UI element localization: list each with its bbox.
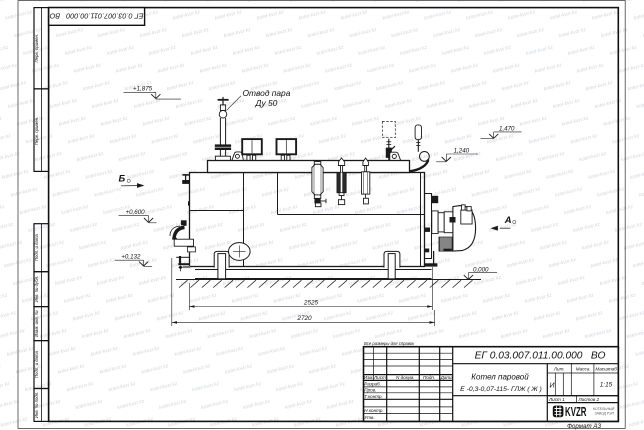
svg-text:Б: Б — [119, 173, 126, 184]
svg-text:kotel-kvzr.kz: kotel-kvzr.kz — [76, 151, 105, 164]
svg-text:kotel-kvzr.kz: kotel-kvzr.kz — [15, 363, 44, 376]
svg-text:kotel-kvzr.kz: kotel-kvzr.kz — [0, 44, 9, 57]
svg-text:kotel-kvzr.kz: kotel-kvzr.kz — [99, 363, 128, 376]
svg-text:kotel-kvzr.kz: kotel-kvzr.kz — [546, 168, 575, 181]
svg-text:kotel-kvzr.kz: kotel-kvzr.kz — [492, 62, 521, 75]
svg-text:kotel-kvzr.kz: kotel-kvzr.kz — [531, 221, 560, 234]
svg-text:1:15: 1:15 — [600, 382, 613, 389]
svg-text:kotel-kvzr.kz: kotel-kvzr.kz — [150, 381, 179, 394]
svg-text:kotel-kvzr.kz: kotel-kvzr.kz — [543, 80, 572, 93]
svg-text:kotel-kvzr.kz: kotel-kvzr.kz — [316, 44, 345, 57]
svg-text:kotel-kvzr.kz: kotel-kvzr.kz — [5, 9, 34, 22]
svg-text:kotel-kvzr.kz: kotel-kvzr.kz — [542, 328, 571, 341]
svg-text:kotel-kvzr.kz: kotel-kvzr.kz — [0, 363, 2, 376]
svg-text:kotel-kvzr.kz: kotel-kvzr.kz — [0, 204, 6, 217]
svg-text:kotel-kvzr.kz: kotel-kvzr.kz — [435, 115, 464, 128]
svg-text:kotel-kvzr.kz: kotel-kvzr.kz — [462, 168, 491, 181]
svg-text:kotel-kvzr.kz: kotel-kvzr.kz — [533, 310, 562, 323]
svg-text:Подп.: Подп. — [423, 375, 435, 380]
svg-text:А: А — [504, 214, 512, 225]
svg-text:kotel-kvzr.kz: kotel-kvzr.kz — [552, 98, 581, 111]
svg-text:kotel-kvzr.kz: kotel-kvzr.kz — [444, 133, 473, 146]
svg-text:kotel-kvzr.kz: kotel-kvzr.kz — [166, 80, 195, 93]
svg-text:kotel-kvzr.kz: kotel-kvzr.kz — [309, 363, 338, 376]
svg-text:kotel-kvzr.kz: kotel-kvzr.kz — [100, 115, 129, 128]
svg-text:kotel-kvzr.kz: kotel-kvzr.kz — [141, 363, 170, 376]
svg-text:kotel-kvzr.kz: kotel-kvzr.kz — [550, 9, 579, 22]
svg-text:kotel-kvzr.kz: kotel-kvzr.kz — [416, 328, 445, 341]
svg-text:kotel-kvzr.kz: kotel-kvzr.kz — [581, 239, 610, 252]
svg-text:kotel-kvzr.kz: kotel-kvzr.kz — [208, 80, 237, 93]
svg-text:kotel-kvzr.kz: kotel-kvzr.kz — [358, 44, 387, 57]
svg-text:kotel-kvzr.kz: kotel-kvzr.kz — [588, 168, 617, 181]
svg-text:kotel-kvzr.kz: kotel-kvzr.kz — [579, 151, 608, 164]
svg-text:kotel-kvzr.kz: kotel-kvzr.kz — [510, 98, 539, 111]
svg-text:kotel-kvzr.kz: kotel-kvzr.kz — [375, 328, 404, 341]
svg-text:kotel-kvzr.kz: kotel-kvzr.kz — [10, 186, 39, 199]
svg-text:kotel-kvzr.kz: kotel-kvzr.kz — [192, 381, 221, 394]
svg-text:kotel-kvzr.kz: kotel-kvzr.kz — [633, 9, 644, 22]
svg-text:Перв. примен.: Перв. примен. — [34, 34, 39, 63]
svg-text:kotel-kvzr.kz: kotel-kvzr.kz — [600, 27, 629, 40]
svg-text:kotel-kvzr.kz: kotel-kvzr.kz — [274, 44, 303, 57]
svg-text:kotel-kvzr.kz: kotel-kvzr.kz — [525, 44, 554, 57]
svg-text:kotel-kvzr.kz: kotel-kvzr.kz — [618, 62, 644, 75]
svg-text:kotel-kvzr.kz: kotel-kvzr.kz — [136, 186, 165, 199]
svg-text:kotel-kvzr.kz: kotel-kvzr.kz — [343, 98, 372, 111]
svg-text:kotel-kvzr.kz: kotel-kvzr.kz — [513, 186, 542, 199]
svg-text:+0,132: +0,132 — [121, 254, 141, 261]
svg-text:kotel-kvzr.kz: kotel-kvzr.kz — [540, 239, 569, 252]
svg-text:Лист 1: Лист 1 — [548, 397, 565, 402]
svg-text:kotel-kvzr.kz: kotel-kvzr.kz — [603, 115, 632, 128]
svg-text:kotel-kvzr.kz: kotel-kvzr.kz — [498, 239, 527, 252]
svg-text:kotel-kvzr.kz: kotel-kvzr.kz — [484, 44, 513, 57]
svg-text:kotel-kvzr.kz: kotel-kvzr.kz — [108, 381, 137, 394]
svg-text:kotel-kvzr.kz: kotel-kvzr.kz — [178, 186, 207, 199]
svg-text:Разраб.: Разраб. — [364, 381, 381, 386]
svg-text:kotel-kvzr.kz: kotel-kvzr.kz — [49, 98, 78, 111]
svg-text:kotel-kvzr.kz: kotel-kvzr.kz — [528, 133, 557, 146]
svg-text:kotel-kvzr.kz: kotel-kvzr.kz — [72, 310, 101, 323]
svg-text:kotel-kvzr.kz: kotel-kvzr.kz — [357, 292, 386, 305]
svg-text:kotel-kvzr.kz: kotel-kvzr.kz — [207, 328, 236, 341]
svg-text:1,240: 1,240 — [454, 147, 470, 154]
svg-text:kotel-kvzr.kz: kotel-kvzr.kz — [183, 363, 212, 376]
svg-text:kotel-kvzr.kz: kotel-kvzr.kz — [223, 27, 252, 40]
svg-text:kotel-kvzr.kz: kotel-kvzr.kz — [325, 62, 354, 75]
svg-text:kotel-kvzr.kz: kotel-kvzr.kz — [627, 80, 644, 93]
svg-text:kotel-kvzr.kz: kotel-kvzr.kz — [105, 292, 134, 305]
svg-text:kotel-kvzr.kz: kotel-kvzr.kz — [139, 27, 168, 40]
svg-text:kotel-kvzr.kz: kotel-kvzr.kz — [265, 27, 294, 40]
svg-text:kotel-kvzr.kz: kotel-kvzr.kz — [276, 381, 305, 394]
svg-text:kotel-kvzr.kz: kotel-kvzr.kz — [524, 292, 553, 305]
svg-text:kotel-kvzr.kz: kotel-kvzr.kz — [317, 381, 346, 394]
svg-text:kotel-kvzr.kz: kotel-kvzr.kz — [639, 186, 644, 199]
svg-text:kotel-kvzr.kz: kotel-kvzr.kz — [39, 328, 68, 341]
svg-text:kotel-kvzr.kz: kotel-kvzr.kz — [55, 275, 84, 288]
svg-text:kotel-kvzr.kz: kotel-kvzr.kz — [222, 275, 251, 288]
svg-text:Перв. примен.: Перв. примен. — [34, 117, 39, 146]
svg-text:Н.контр.: Н.контр. — [364, 408, 383, 413]
svg-text:kotel-kvzr.kz: kotel-kvzr.kz — [620, 398, 644, 411]
svg-text:Котел паровой: Котел паровой — [471, 373, 529, 382]
svg-text:kotel-kvzr.kz: kotel-kvzr.kz — [133, 98, 162, 111]
svg-text:kotel-kvzr.kz: kotel-kvzr.kz — [360, 133, 389, 146]
svg-text:kotel-kvzr.kz: kotel-kvzr.kz — [214, 9, 243, 22]
svg-text:kotel-kvzr.kz: kotel-kvzr.kz — [339, 257, 368, 270]
svg-text:kotel-kvzr.kz: kotel-kvzr.kz — [88, 257, 117, 270]
svg-text:+0,600: +0,600 — [126, 209, 146, 216]
svg-text:kotel-kvzr.kz: kotel-kvzr.kz — [65, 44, 94, 57]
svg-text:kotel-kvzr.kz: kotel-kvzr.kz — [326, 398, 355, 411]
svg-text:Формат А3: Формат А3 — [567, 423, 601, 430]
svg-text:kotel-kvzr.kz: kotel-kvzr.kz — [210, 416, 239, 429]
svg-text:kotel-kvzr.kz: kotel-kvzr.kz — [216, 345, 245, 358]
svg-text:kotel-kvzr.kz: kotel-kvzr.kz — [46, 257, 75, 270]
svg-text:kotel-kvzr.kz: kotel-kvzr.kz — [117, 398, 146, 411]
svg-text:kotel-kvzr.kz: kotel-kvzr.kz — [291, 328, 320, 341]
svg-text:kotel-kvzr.kz: kotel-kvzr.kz — [606, 204, 635, 217]
svg-text:kotel-kvzr.kz: kotel-kvzr.kz — [629, 416, 644, 429]
svg-text:kotel-kvzr.kz: kotel-kvzr.kz — [261, 186, 290, 199]
svg-text:kotel-kvzr.kz: kotel-kvzr.kz — [393, 115, 422, 128]
svg-text:kotel-kvzr.kz: kotel-kvzr.kz — [0, 221, 15, 234]
svg-text:kotel-kvzr.kz: kotel-kvzr.kz — [73, 62, 102, 75]
svg-text:KVZR: KVZR — [565, 405, 587, 419]
svg-text:kotel-kvzr.kz: kotel-kvzr.kz — [81, 328, 110, 341]
svg-text:kotel-kvzr.kz: kotel-kvzr.kz — [626, 328, 644, 341]
svg-text:kotel-kvzr.kz: kotel-kvzr.kz — [537, 151, 566, 164]
svg-text:kotel-kvzr.kz: kotel-kvzr.kz — [441, 292, 470, 305]
svg-text:kotel-kvzr.kz: kotel-kvzr.kz — [157, 62, 186, 75]
svg-text:kotel-kvzr.kz: kotel-kvzr.kz — [293, 416, 322, 429]
svg-text:kotel-kvzr.kz: kotel-kvzr.kz — [519, 115, 548, 128]
svg-text:kotel-kvzr.kz: kotel-kvzr.kz — [190, 44, 219, 57]
svg-text:Дата: Дата — [440, 375, 454, 380]
svg-text:kotel-kvzr.kz: kotel-kvzr.kz — [558, 27, 587, 40]
svg-text:kotel-kvzr.kz: kotel-kvzr.kz — [174, 345, 203, 358]
svg-text:kotel-kvzr.kz: kotel-kvzr.kz — [246, 239, 275, 252]
svg-text:kotel-kvzr.kz: kotel-kvzr.kz — [575, 310, 604, 323]
svg-text:kotel-kvzr.kz: kotel-kvzr.kz — [495, 151, 524, 164]
svg-text:kotel-kvzr.kz: kotel-kvzr.kz — [508, 9, 537, 22]
svg-text:kotel-kvzr.kz: kotel-kvzr.kz — [63, 292, 92, 305]
svg-text:kotel-kvzr.kz: kotel-kvzr.kz — [7, 98, 36, 111]
svg-text:kotel-kvzr.kz: kotel-kvzr.kz — [599, 275, 628, 288]
svg-text:ЗАВОД РЭП: ЗАВОД РЭП — [595, 411, 615, 415]
svg-text:kotel-kvzr.kz: kotel-kvzr.kz — [348, 275, 377, 288]
svg-text:ЕГ 0.03.007.011.00.000 ВО: ЕГ 0.03.007.011.00.000 ВО — [475, 351, 606, 362]
svg-text:kotel-kvzr.kz: kotel-kvzr.kz — [307, 27, 336, 40]
svg-text:kotel-kvzr.kz: kotel-kvzr.kz — [424, 9, 453, 22]
svg-text:kotel-kvzr.kz: kotel-kvzr.kz — [225, 363, 254, 376]
svg-text:kotel-kvzr.kz: kotel-kvzr.kz — [70, 221, 99, 234]
svg-text:kotel-kvzr.kz: kotel-kvzr.kz — [231, 292, 260, 305]
svg-text:kotel-kvzr.kz: kotel-kvzr.kz — [630, 168, 644, 181]
svg-text:kotel-kvzr.kz: kotel-kvzr.kz — [0, 27, 1, 40]
svg-text:kotel-kvzr.kz: kotel-kvzr.kz — [201, 398, 230, 411]
svg-text:kotel-kvzr.kz: kotel-kvzr.kz — [623, 239, 644, 252]
svg-text:kotel-kvzr.kz: kotel-kvzr.kz — [106, 44, 135, 57]
svg-text:kotel-kvzr.kz: kotel-kvzr.kz — [399, 292, 428, 305]
svg-text:kotel-kvzr.kz: kotel-kvzr.kz — [0, 133, 12, 146]
svg-text:kotel-kvzr.kz: kotel-kvzr.kz — [459, 80, 488, 93]
svg-text:kotel-kvzr.kz: kotel-kvzr.kz — [584, 328, 613, 341]
svg-text:kotel-kvzr.kz: kotel-kvzr.kz — [504, 168, 533, 181]
svg-text:kotel-kvzr.kz: kotel-kvzr.kz — [612, 133, 641, 146]
svg-text:kotel-kvzr.kz: kotel-kvzr.kz — [534, 62, 563, 75]
svg-text:kotel-kvzr.kz: kotel-kvzr.kz — [376, 80, 405, 93]
svg-text:kotel-kvzr.kz: kotel-kvzr.kz — [96, 275, 125, 288]
svg-text:kotel-kvzr.kz: kotel-kvzr.kz — [0, 239, 24, 252]
svg-text:kotel-kvzr.kz: kotel-kvzr.kz — [458, 328, 487, 341]
svg-text:kotel-kvzr.kz: kotel-kvzr.kz — [451, 62, 480, 75]
svg-text:kotel-kvzr.kz: kotel-kvzr.kz — [576, 62, 605, 75]
svg-text:kotel-kvzr.kz: kotel-kvzr.kz — [315, 292, 344, 305]
svg-text:kotel-kvzr.kz: kotel-kvzr.kz — [468, 98, 497, 111]
svg-text:kotel-kvzr.kz: kotel-kvzr.kz — [258, 345, 287, 358]
svg-text:kotel-kvzr.kz: kotel-kvzr.kz — [79, 239, 108, 252]
svg-text:kotel-kvzr.kz: kotel-kvzr.kz — [385, 98, 414, 111]
svg-text:kotel-kvzr.kz: kotel-kvzr.kz — [330, 239, 359, 252]
svg-text:kotel-kvzr.kz: kotel-kvzr.kz — [301, 98, 330, 111]
svg-text:kotel-kvzr.kz: kotel-kvzr.kz — [324, 310, 353, 323]
svg-text:kotel-kvzr.kz: kotel-kvzr.kz — [335, 416, 364, 429]
svg-text:kotel-kvzr.kz: kotel-kvzr.kz — [67, 133, 96, 146]
svg-text:kotel-kvzr.kz: kotel-kvzr.kz — [321, 221, 350, 234]
svg-text:kotel-kvzr.kz: kotel-kvzr.kz — [256, 9, 285, 22]
svg-text:kotel-kvzr.kz: kotel-kvzr.kz — [310, 115, 339, 128]
svg-text:kotel-kvzr.kz: kotel-kvzr.kz — [240, 310, 269, 323]
svg-text:kotel-kvzr.kz: kotel-kvzr.kz — [363, 221, 392, 234]
svg-text:kotel-kvzr.kz: kotel-kvzr.kz — [557, 275, 586, 288]
svg-text:kotel-kvzr.kz: kotel-kvzr.kz — [507, 257, 536, 270]
svg-text:kotel-kvzr.kz: kotel-kvzr.kz — [0, 292, 8, 305]
svg-text:kotel-kvzr.kz: kotel-kvzr.kz — [0, 62, 18, 75]
svg-text:kotel-kvzr.kz: kotel-kvzr.kz — [474, 275, 503, 288]
svg-text:kotel-kvzr.kz: kotel-kvzr.kz — [500, 328, 529, 341]
svg-text:kotel-kvzr.kz: kotel-kvzr.kz — [573, 221, 602, 234]
svg-text:kotel-kvzr.kz: kotel-kvzr.kz — [319, 133, 348, 146]
svg-text:kotel-kvzr.kz: kotel-kvzr.kz — [1, 168, 30, 181]
svg-text:kotel-kvzr.kz: kotel-kvzr.kz — [123, 328, 152, 341]
svg-text:kotel-kvzr.kz: kotel-kvzr.kz — [501, 80, 530, 93]
svg-text:kotel-kvzr.kz: kotel-kvzr.kz — [590, 257, 619, 270]
svg-text:kotel-kvzr.kz: kotel-kvzr.kz — [522, 204, 551, 217]
svg-text:kotel-kvzr.kz: kotel-kvzr.kz — [112, 221, 141, 234]
svg-text:Масштаб: Масштаб — [595, 367, 617, 372]
svg-text:kotel-kvzr.kz: kotel-kvzr.kz — [114, 310, 143, 323]
svg-text:kotel-kvzr.kz: kotel-kvzr.kz — [475, 27, 504, 40]
svg-text:kotel-kvzr.kz: kotel-kvzr.kz — [491, 310, 520, 323]
svg-text:kotel-kvzr.kz: kotel-kvzr.kz — [566, 292, 595, 305]
svg-text:kotel-kvzr.kz: kotel-kvzr.kz — [132, 345, 161, 358]
svg-text:kotel-kvzr.kz: kotel-kvzr.kz — [85, 168, 114, 181]
svg-text:kotel-kvzr.kz: kotel-kvzr.kz — [617, 310, 644, 323]
svg-text:kotel-kvzr.kz: kotel-kvzr.kz — [567, 44, 596, 57]
svg-text:kotel-kvzr.kz: kotel-kvzr.kz — [61, 204, 90, 217]
svg-text:Взам. инв. №: Взам. инв. № — [34, 310, 39, 337]
svg-text:Инв. № дубл.: Инв. № дубл. — [34, 276, 39, 302]
svg-text:kotel-kvzr.kz: kotel-kvzr.kz — [297, 257, 326, 270]
svg-text:kotel-kvzr.kz: kotel-kvzr.kz — [564, 204, 593, 217]
svg-text:kotel-kvzr.kz: kotel-kvzr.kz — [98, 27, 127, 40]
svg-text:kotel-kvzr.kz: kotel-kvzr.kz — [292, 80, 321, 93]
svg-text:kotel-kvzr.kz: kotel-kvzr.kz — [148, 44, 177, 57]
svg-text:kotel-kvzr.kz: kotel-kvzr.kz — [94, 186, 123, 199]
svg-text:kotel-kvzr.kz: kotel-kvzr.kz — [267, 363, 296, 376]
svg-text:kotel-kvzr.kz: kotel-kvzr.kz — [151, 133, 180, 146]
svg-text:2525: 2525 — [303, 299, 319, 306]
svg-text:kotel-kvzr.kz: kotel-kvzr.kz — [382, 9, 411, 22]
svg-text:kotel-kvzr.kz: kotel-kvzr.kz — [255, 257, 284, 270]
svg-text:kotel-kvzr.kz: kotel-kvzr.kz — [482, 292, 511, 305]
svg-text:kotel-kvzr.kz: kotel-kvzr.kz — [366, 310, 395, 323]
svg-text:kotel-kvzr.kz: kotel-kvzr.kz — [232, 44, 261, 57]
svg-text:kotel-kvzr.kz: kotel-kvzr.kz — [43, 168, 72, 181]
svg-text:kotel-kvzr.kz: kotel-kvzr.kz — [32, 62, 61, 75]
svg-text:kotel-kvzr.kz: kotel-kvzr.kz — [172, 9, 201, 22]
svg-text:kotel-kvzr.kz: kotel-kvzr.kz — [115, 62, 144, 75]
svg-text:kotel-kvzr.kz: kotel-kvzr.kz — [449, 310, 478, 323]
svg-text:kotel-kvzr.kz: kotel-kvzr.kz — [548, 257, 577, 270]
svg-text:kotel-kvzr.kz: kotel-kvzr.kz — [58, 115, 87, 128]
svg-text:kotel-kvzr.kz: kotel-kvzr.kz — [636, 98, 644, 111]
svg-text:kotel-kvzr.kz: kotel-kvzr.kz — [426, 98, 455, 111]
svg-text:kotel-kvzr.kz: kotel-kvzr.kz — [0, 398, 20, 411]
svg-text:kotel-kvzr.kz: kotel-kvzr.kz — [300, 345, 329, 358]
svg-text:1,470: 1,470 — [499, 125, 515, 132]
svg-text:Все размеры для справок: Все размеры для справок — [364, 341, 415, 346]
svg-text:kotel-kvzr.kz: kotel-kvzr.kz — [184, 115, 213, 128]
svg-text:kotel-kvzr.kz: kotel-kvzr.kz — [6, 345, 35, 358]
svg-text:kotel-kvzr.kz: kotel-kvzr.kz — [82, 80, 111, 93]
svg-text:kotel-kvzr.kz: kotel-kvzr.kz — [284, 398, 313, 411]
svg-text:kotel-kvzr.kz: kotel-kvzr.kz — [193, 133, 222, 146]
svg-text:kotel-kvzr.kz: kotel-kvzr.kz — [237, 221, 266, 234]
svg-text:Отвод пара: Отвод пара — [243, 88, 291, 98]
svg-text:kotel-kvzr.kz: kotel-kvzr.kz — [442, 44, 471, 57]
svg-text:kotel-kvzr.kz: kotel-kvzr.kz — [0, 80, 27, 93]
svg-text:КОТЕЛЬНЫЙ: КОТЕЛЬНЫЙ — [593, 407, 615, 411]
svg-text:Инв. № подл.: Инв. № подл. — [34, 392, 39, 419]
svg-text:kotel-kvzr.kz: kotel-kvzr.kz — [268, 115, 297, 128]
svg-text:kotel-kvzr.kz: kotel-kvzr.kz — [25, 133, 54, 146]
svg-text:kotel-kvzr.kz: kotel-kvzr.kz — [175, 98, 204, 111]
svg-text:kotel-kvzr.kz: kotel-kvzr.kz — [367, 62, 396, 75]
svg-text:kotel-kvzr.kz: kotel-kvzr.kz — [372, 239, 401, 252]
svg-text:kotel-kvzr.kz: kotel-kvzr.kz — [84, 416, 113, 429]
svg-text:kotel-kvzr.kz: kotel-kvzr.kz — [298, 9, 327, 22]
svg-text:kotel-kvzr.kz: kotel-kvzr.kz — [156, 310, 185, 323]
svg-text:kotel-kvzr.kz: kotel-kvzr.kz — [145, 204, 174, 217]
svg-text:kotel-kvzr.kz: kotel-kvzr.kz — [75, 398, 104, 411]
svg-text:kotel-kvzr.kz: kotel-kvzr.kz — [515, 275, 544, 288]
svg-text:kotel-kvzr.kz: kotel-kvzr.kz — [279, 221, 308, 234]
svg-text:kotel-kvzr.kz: kotel-kvzr.kz — [16, 115, 45, 128]
svg-text:kotel-kvzr.kz: kotel-kvzr.kz — [609, 44, 638, 57]
svg-text:kotel-kvzr.kz: kotel-kvzr.kz — [52, 186, 81, 199]
svg-text:kotel-kvzr.kz: kotel-kvzr.kz — [409, 62, 438, 75]
svg-text:Лит.: Лит. — [553, 367, 565, 372]
svg-text:kotel-kvzr.kz: kotel-kvzr.kz — [109, 133, 138, 146]
svg-text:kotel-kvzr.kz: kotel-kvzr.kz — [400, 44, 429, 57]
svg-text:kotel-kvzr.kz: kotel-kvzr.kz — [433, 27, 462, 40]
svg-text:kotel-kvzr.kz: kotel-kvzr.kz — [466, 9, 495, 22]
svg-text:Изм.: Изм. — [364, 375, 374, 380]
svg-text:+1,875: +1,875 — [133, 86, 153, 93]
svg-text:kotel-kvzr.kz: kotel-kvzr.kz — [138, 275, 167, 288]
svg-text:kotel-kvzr.kz: kotel-kvzr.kz — [585, 80, 614, 93]
svg-text:kotel-kvzr.kz: kotel-kvzr.kz — [243, 398, 272, 411]
svg-text:ЕГ 0.03.007.011.00.000 ВО: ЕГ 0.03.007.011.00.000 ВО — [49, 11, 143, 20]
svg-text:kotel-kvzr.kz: kotel-kvzr.kz — [635, 345, 644, 358]
svg-text:kotel-kvzr.kz: kotel-kvzr.kz — [333, 328, 362, 341]
svg-text:kotel-kvzr.kz: kotel-kvzr.kz — [352, 115, 381, 128]
svg-text:kotel-kvzr.kz: kotel-kvzr.kz — [127, 168, 156, 181]
svg-text:kotel-kvzr.kz: kotel-kvzr.kz — [66, 381, 95, 394]
svg-text:kotel-kvzr.kz: kotel-kvzr.kz — [283, 62, 312, 75]
svg-text:kotel-kvzr.kz: kotel-kvzr.kz — [56, 27, 85, 40]
svg-text:Листов 2: Листов 2 — [578, 397, 600, 402]
svg-text:kotel-kvzr.kz: kotel-kvzr.kz — [632, 257, 644, 270]
svg-text:kotel-kvzr.kz: kotel-kvzr.kz — [432, 275, 461, 288]
svg-text:kotel-kvzr.kz: kotel-kvzr.kz — [288, 239, 317, 252]
svg-text:kotel-kvzr.kz: kotel-kvzr.kz — [48, 345, 77, 358]
svg-text:kotel-kvzr.kz: kotel-kvzr.kz — [0, 115, 3, 128]
svg-text:kotel-kvzr.kz: kotel-kvzr.kz — [42, 416, 71, 429]
svg-text:Масса: Масса — [576, 367, 590, 372]
svg-text:kotel-kvzr.kz: kotel-kvzr.kz — [349, 27, 378, 40]
svg-text:Ду 50: Ду 50 — [255, 98, 278, 108]
svg-text:kotel-kvzr.kz: kotel-kvzr.kz — [251, 416, 280, 429]
svg-text:kotel-kvzr.kz: kotel-kvzr.kz — [19, 204, 48, 217]
svg-text:kotel-kvzr.kz: kotel-kvzr.kz — [249, 328, 278, 341]
svg-text:kotel-kvzr.kz: kotel-kvzr.kz — [555, 186, 584, 199]
svg-text:kotel-kvzr.kz: kotel-kvzr.kz — [273, 292, 302, 305]
svg-text:kotel-kvzr.kz: kotel-kvzr.kz — [0, 310, 17, 323]
svg-text:kotel-kvzr.kz: kotel-kvzr.kz — [195, 221, 224, 234]
svg-text:kotel-kvzr.kz: kotel-kvzr.kz — [40, 80, 69, 93]
svg-text:2720: 2720 — [296, 315, 312, 322]
svg-text:kotel-kvzr.kz: kotel-kvzr.kz — [517, 27, 546, 40]
svg-text:kotel-kvzr.kz: kotel-kvzr.kz — [199, 62, 228, 75]
svg-text:kotel-kvzr.kz: kotel-kvzr.kz — [0, 328, 26, 341]
svg-text:kotel-kvzr.kz: kotel-kvzr.kz — [57, 363, 86, 376]
svg-text:Пров.: Пров. — [364, 388, 376, 393]
svg-text:kotel-kvzr.kz: kotel-kvzr.kz — [591, 9, 620, 22]
svg-text:kotel-kvzr.kz: kotel-kvzr.kz — [340, 9, 369, 22]
svg-text:0,000: 0,000 — [473, 266, 489, 273]
svg-text:kotel-kvzr.kz: kotel-kvzr.kz — [561, 115, 590, 128]
svg-text:kotel-kvzr.kz: kotel-kvzr.kz — [387, 186, 416, 199]
svg-text:kotel-kvzr.kz: kotel-kvzr.kz — [408, 310, 437, 323]
svg-text:kotel-kvzr.kz: kotel-kvzr.kz — [334, 80, 363, 93]
svg-text:kotel-kvzr.kz: kotel-kvzr.kz — [418, 80, 447, 93]
svg-text:kotel-kvzr.kz: kotel-kvzr.kz — [0, 381, 11, 394]
svg-text:kotel-kvzr.kz: kotel-kvzr.kz — [597, 186, 626, 199]
svg-text:Подп. и дата: Подп. и дата — [34, 351, 39, 379]
svg-text:Подп. и дата: Подп. и дата — [34, 234, 39, 262]
svg-text:kotel-kvzr.kz: kotel-kvzr.kz — [165, 328, 194, 341]
svg-text:N докум.: N докум. — [396, 375, 415, 380]
svg-text:kotel-kvzr.kz: kotel-kvzr.kz — [234, 381, 263, 394]
svg-text:kotel-kvzr.kz: kotel-kvzr.kz — [142, 115, 171, 128]
svg-text:kotel-kvzr.kz: kotel-kvzr.kz — [391, 27, 420, 40]
svg-text:kotel-kvzr.kz: kotel-kvzr.kz — [471, 186, 500, 199]
